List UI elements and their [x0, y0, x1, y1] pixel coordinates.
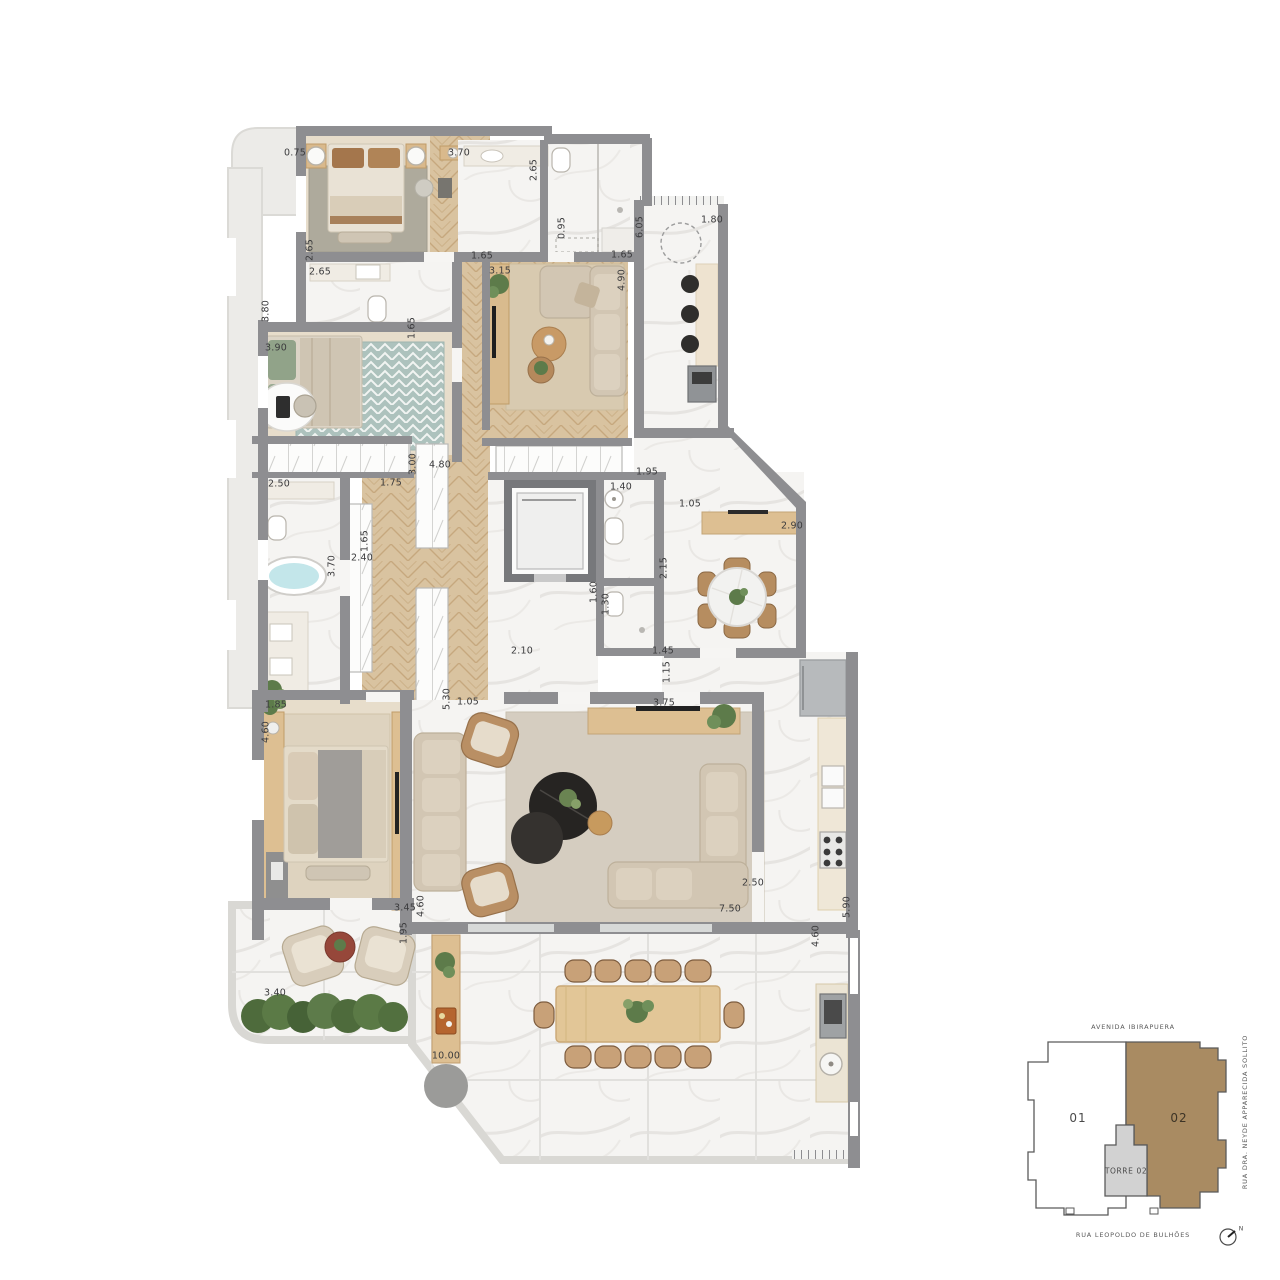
- terrace-top-right: [640, 196, 724, 432]
- living-room: [412, 700, 764, 930]
- north-compass-icon: [1220, 1229, 1236, 1245]
- family-room: [487, 264, 626, 410]
- keyplan-unit-01-label: 01: [1069, 1111, 1086, 1125]
- keyplan-unit-02-label: 02: [1170, 1111, 1187, 1125]
- keyplan-street-bottom: RUA LEOPOLDO DE BULHÕES: [1076, 1231, 1190, 1239]
- lavabo: [598, 478, 660, 648]
- bathroom-master: [458, 140, 644, 258]
- floor-plan-page: 0.753.702.651.653.151.650.956.051.804.90…: [0, 0, 1280, 1280]
- bedroom-3: [262, 697, 406, 910]
- bathroom-suite-2: [262, 478, 342, 701]
- elevator: [504, 480, 596, 582]
- bathroom-2: [304, 260, 452, 330]
- keyplan-street-right: RUA DRA. NEYDE APPARECIDA SOLLITO: [1241, 1035, 1249, 1189]
- keyplan-street-top: AVENIDA IBIRAPUERA: [1091, 1023, 1175, 1031]
- keyplan-tower-label: TORRE 02: [1105, 1167, 1147, 1176]
- floor-plan-drawing: [0, 0, 1280, 1280]
- keyplan-north-label: N: [1239, 1226, 1244, 1233]
- keyplan: [1028, 1042, 1236, 1245]
